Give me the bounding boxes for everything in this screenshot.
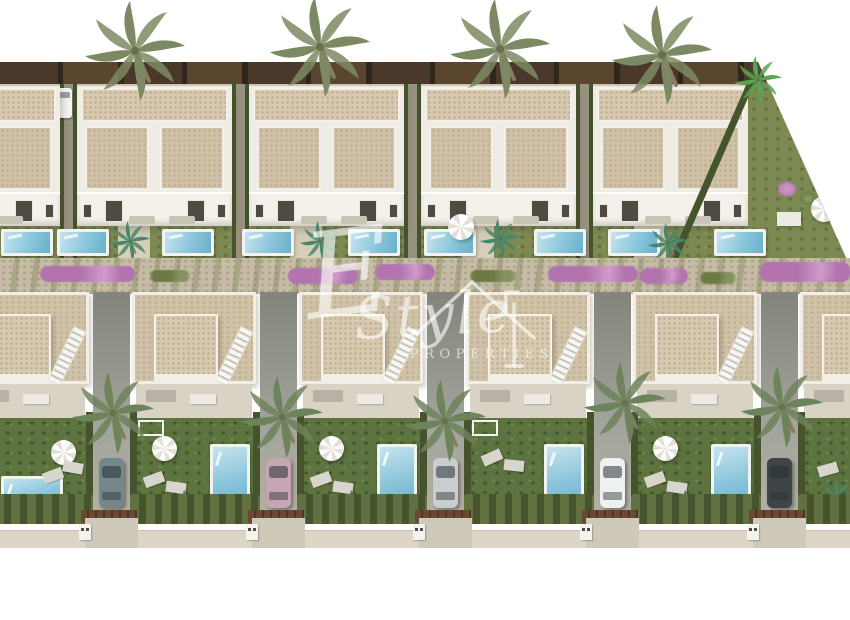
flowering-shrub bbox=[832, 216, 848, 229]
dining-table bbox=[691, 394, 717, 404]
top-villa-block bbox=[421, 86, 576, 226]
front-hedge bbox=[297, 494, 427, 524]
window bbox=[389, 204, 398, 218]
villa-roof-back bbox=[0, 88, 56, 122]
car-rear-window bbox=[436, 492, 455, 500]
bougainvillea-flowers bbox=[375, 264, 435, 280]
swimming-pool bbox=[348, 229, 400, 256]
grass-tuft bbox=[700, 272, 736, 284]
driveway-apron bbox=[252, 518, 305, 548]
dining-table bbox=[357, 394, 383, 404]
upper-floor-roof bbox=[321, 314, 385, 376]
terrace-furniture bbox=[169, 216, 195, 224]
flowering-shrub bbox=[778, 182, 796, 196]
front-hedge bbox=[130, 494, 260, 524]
parasol bbox=[448, 214, 474, 240]
dining-table bbox=[524, 394, 550, 404]
swimming-pool bbox=[534, 229, 586, 256]
upper-floor-roof bbox=[154, 314, 218, 376]
car-rear-window bbox=[603, 492, 622, 500]
entrance-posts bbox=[413, 524, 425, 540]
window bbox=[45, 204, 54, 218]
lawn-palm-tree bbox=[296, 219, 344, 263]
van-window bbox=[60, 92, 70, 98]
window bbox=[561, 204, 570, 218]
bougainvillea-flowers bbox=[548, 266, 638, 282]
upper-floor-roof bbox=[488, 314, 552, 376]
bougainvillea-flowers bbox=[288, 268, 358, 284]
top-villa-block bbox=[249, 86, 404, 226]
bougainvillea-flowers bbox=[640, 268, 688, 284]
front-hedge bbox=[464, 494, 594, 524]
parasol bbox=[811, 196, 837, 222]
window bbox=[427, 204, 436, 218]
top-villa-block bbox=[0, 86, 60, 226]
swimming-pool bbox=[714, 229, 766, 256]
driveway-apron bbox=[419, 518, 472, 548]
car-windshield bbox=[770, 466, 789, 478]
palm-tree bbox=[732, 362, 832, 452]
sun-loungers bbox=[777, 212, 801, 226]
car-rear-window bbox=[269, 492, 288, 500]
car-windshield bbox=[102, 466, 121, 478]
bougainvillea-flowers bbox=[760, 262, 850, 282]
dining-table bbox=[23, 394, 49, 404]
bougainvillea-flowers bbox=[40, 266, 135, 282]
upper-floor-facade bbox=[154, 374, 218, 383]
car bbox=[767, 458, 792, 508]
villa-roof-gable bbox=[0, 126, 52, 190]
entrance-posts bbox=[580, 524, 592, 540]
window bbox=[83, 204, 92, 218]
palm-tree bbox=[75, 0, 195, 106]
upper-floor-roof bbox=[0, 314, 51, 376]
palm-tree bbox=[260, 0, 380, 102]
upper-floor-facade bbox=[488, 374, 552, 383]
car-rear-window bbox=[102, 492, 121, 500]
outdoor-kitchen bbox=[0, 390, 9, 402]
palm-tree bbox=[63, 368, 163, 458]
villa-facade bbox=[77, 192, 232, 226]
palm-tree bbox=[232, 372, 332, 462]
entrance-posts bbox=[246, 524, 258, 540]
car-windshield bbox=[603, 466, 622, 478]
dining-table bbox=[190, 394, 216, 404]
car-windshield bbox=[269, 466, 288, 478]
lawn-palm-tree bbox=[106, 219, 154, 263]
front-hedge bbox=[0, 494, 93, 524]
car bbox=[99, 458, 124, 508]
palm-tree bbox=[575, 358, 675, 448]
window bbox=[255, 204, 264, 218]
villa-roof-gable bbox=[429, 126, 493, 190]
flower-strip bbox=[0, 258, 850, 294]
grass-tuft bbox=[150, 270, 190, 282]
palm-tree bbox=[602, 0, 722, 110]
driveway-apron bbox=[85, 518, 138, 548]
villa-roof-gable bbox=[85, 126, 149, 190]
car bbox=[600, 458, 625, 508]
driveway-apron bbox=[586, 518, 639, 548]
window bbox=[733, 204, 742, 218]
driveway-apron bbox=[753, 518, 806, 548]
car-rear-window bbox=[770, 492, 789, 500]
villa-facade bbox=[0, 192, 60, 226]
entrance-posts bbox=[79, 524, 91, 540]
car-windshield bbox=[436, 466, 455, 478]
patio-door bbox=[621, 200, 639, 222]
terrace-furniture bbox=[0, 216, 23, 224]
window bbox=[599, 204, 608, 218]
terrace-furniture bbox=[341, 216, 367, 224]
villa-roof-gable bbox=[160, 126, 224, 190]
aerial-development-render: E Style PROPERTIES bbox=[0, 0, 850, 620]
swimming-pool bbox=[57, 229, 109, 256]
villa-roof-gable bbox=[601, 126, 665, 190]
villa-roof-gable bbox=[332, 126, 396, 190]
parked-van bbox=[58, 88, 72, 118]
entrance-posts bbox=[747, 524, 759, 540]
upper-floor-facade bbox=[0, 374, 51, 383]
grass-tuft bbox=[470, 270, 516, 282]
sun-lounger bbox=[503, 459, 524, 472]
alley-hedge bbox=[404, 84, 421, 262]
palm-tree bbox=[440, 0, 560, 104]
banana-plant bbox=[728, 54, 788, 106]
front-hedge bbox=[631, 494, 761, 524]
car bbox=[266, 458, 291, 508]
top-villa-block bbox=[77, 86, 232, 226]
swimming-pool bbox=[1, 229, 53, 256]
window bbox=[217, 204, 226, 218]
villa-roof-gable bbox=[257, 126, 321, 190]
swimming-pool bbox=[242, 229, 294, 256]
palm-tree bbox=[395, 376, 495, 466]
swimming-pool bbox=[162, 229, 214, 256]
villa-roof-gable bbox=[504, 126, 568, 190]
patio-door bbox=[277, 200, 295, 222]
lawn-palm-tree bbox=[476, 217, 524, 261]
